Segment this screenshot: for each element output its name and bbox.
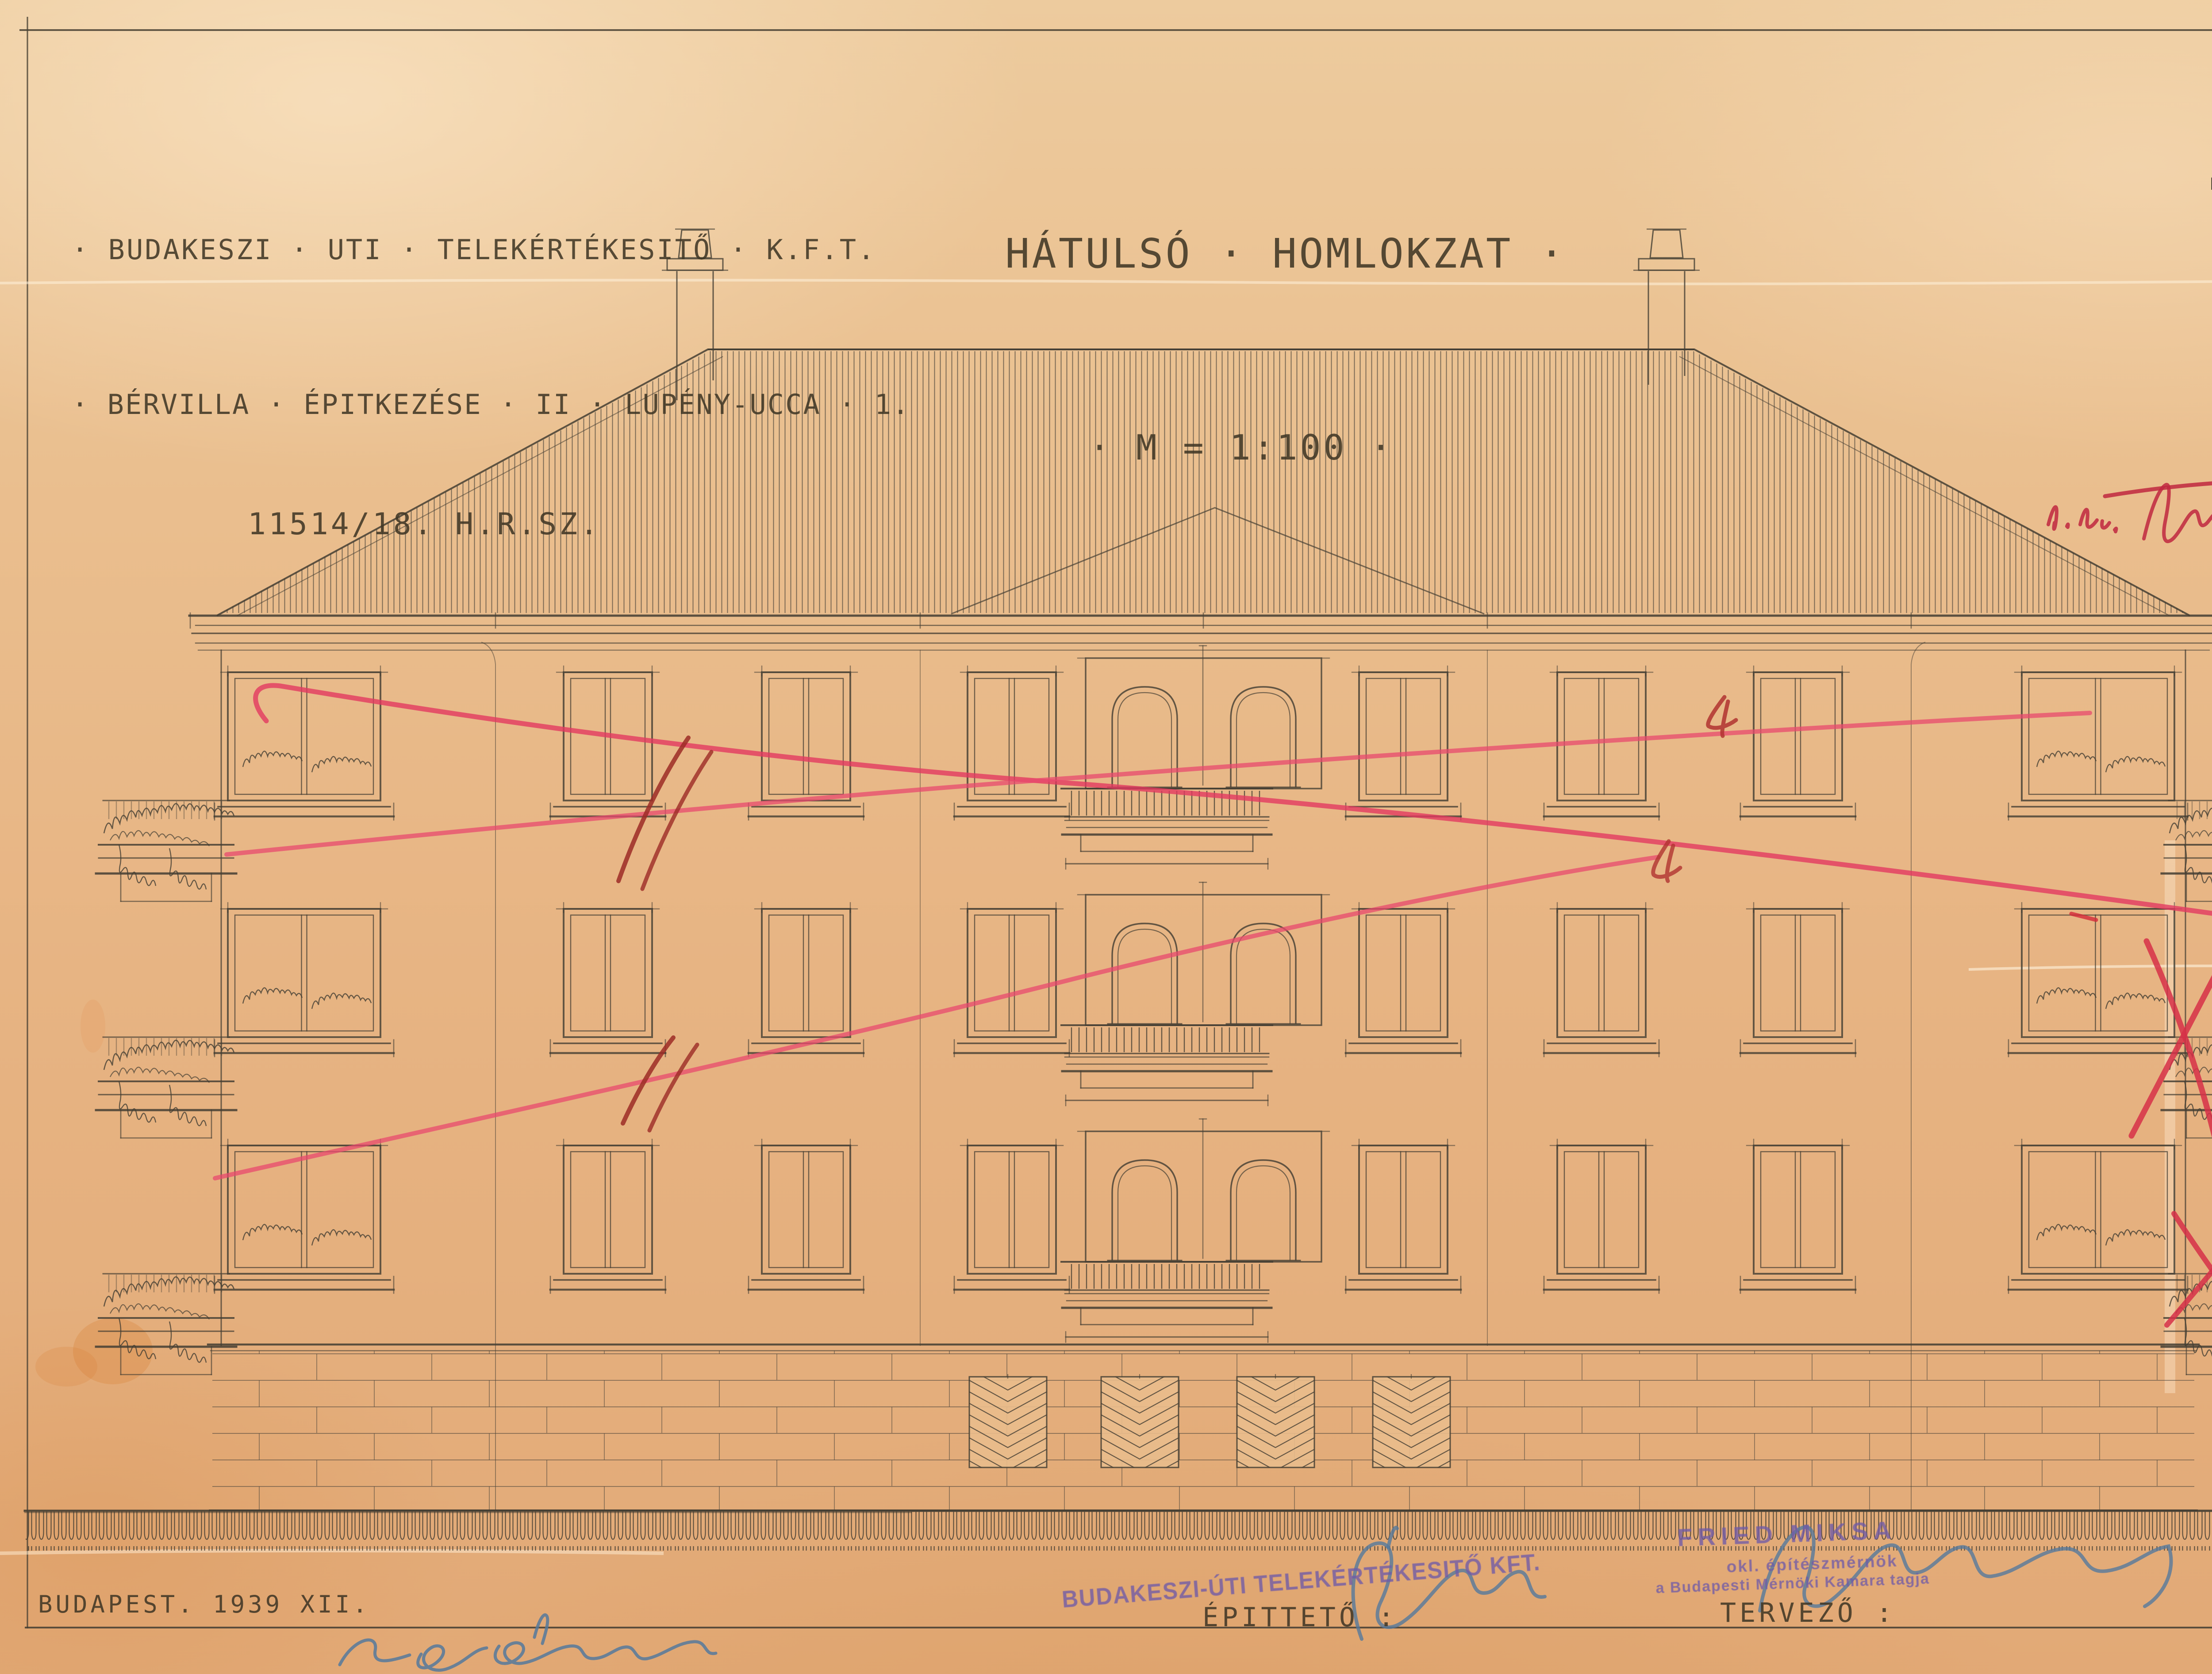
project-title-line1: · BUDAKESZI · UTI · TELEKÉRTÉKESITŐ · K.… [72, 234, 876, 266]
date-place: BUDAPEST. 1939 XII. [38, 1590, 370, 1618]
archive-name: Budapest Főváros Levéltára [2210, 174, 2212, 194]
archive-logo: Budapest Főváros Levéltára [2210, 41, 2212, 194]
signature-bottom-left [340, 1615, 716, 1670]
client-label: ÉPITTETŐ : [1202, 1602, 1398, 1633]
project-title-line2: · BÉRVILLA · ÉPITKEZÉSE · II · LUPÉNY-UC… [72, 388, 910, 421]
drawing-title: HÁTULSÓ · HOMLOKZAT · [1005, 230, 1566, 277]
archive-coat-of-arms [2210, 41, 2212, 173]
designer-label: TERVEZŐ : [1720, 1597, 1896, 1628]
blueprint-sheet: · BUDAKESZI · UTI · TELEKÉRTÉKESITŐ · K.… [0, 0, 2212, 1674]
red-handwriting [2048, 481, 2212, 541]
building-facade [25, 613, 2212, 1551]
lot-number: 11514/18. H.R.SZ. [248, 507, 601, 542]
drawing-scale: · M = 1:100 · [1089, 428, 1394, 468]
